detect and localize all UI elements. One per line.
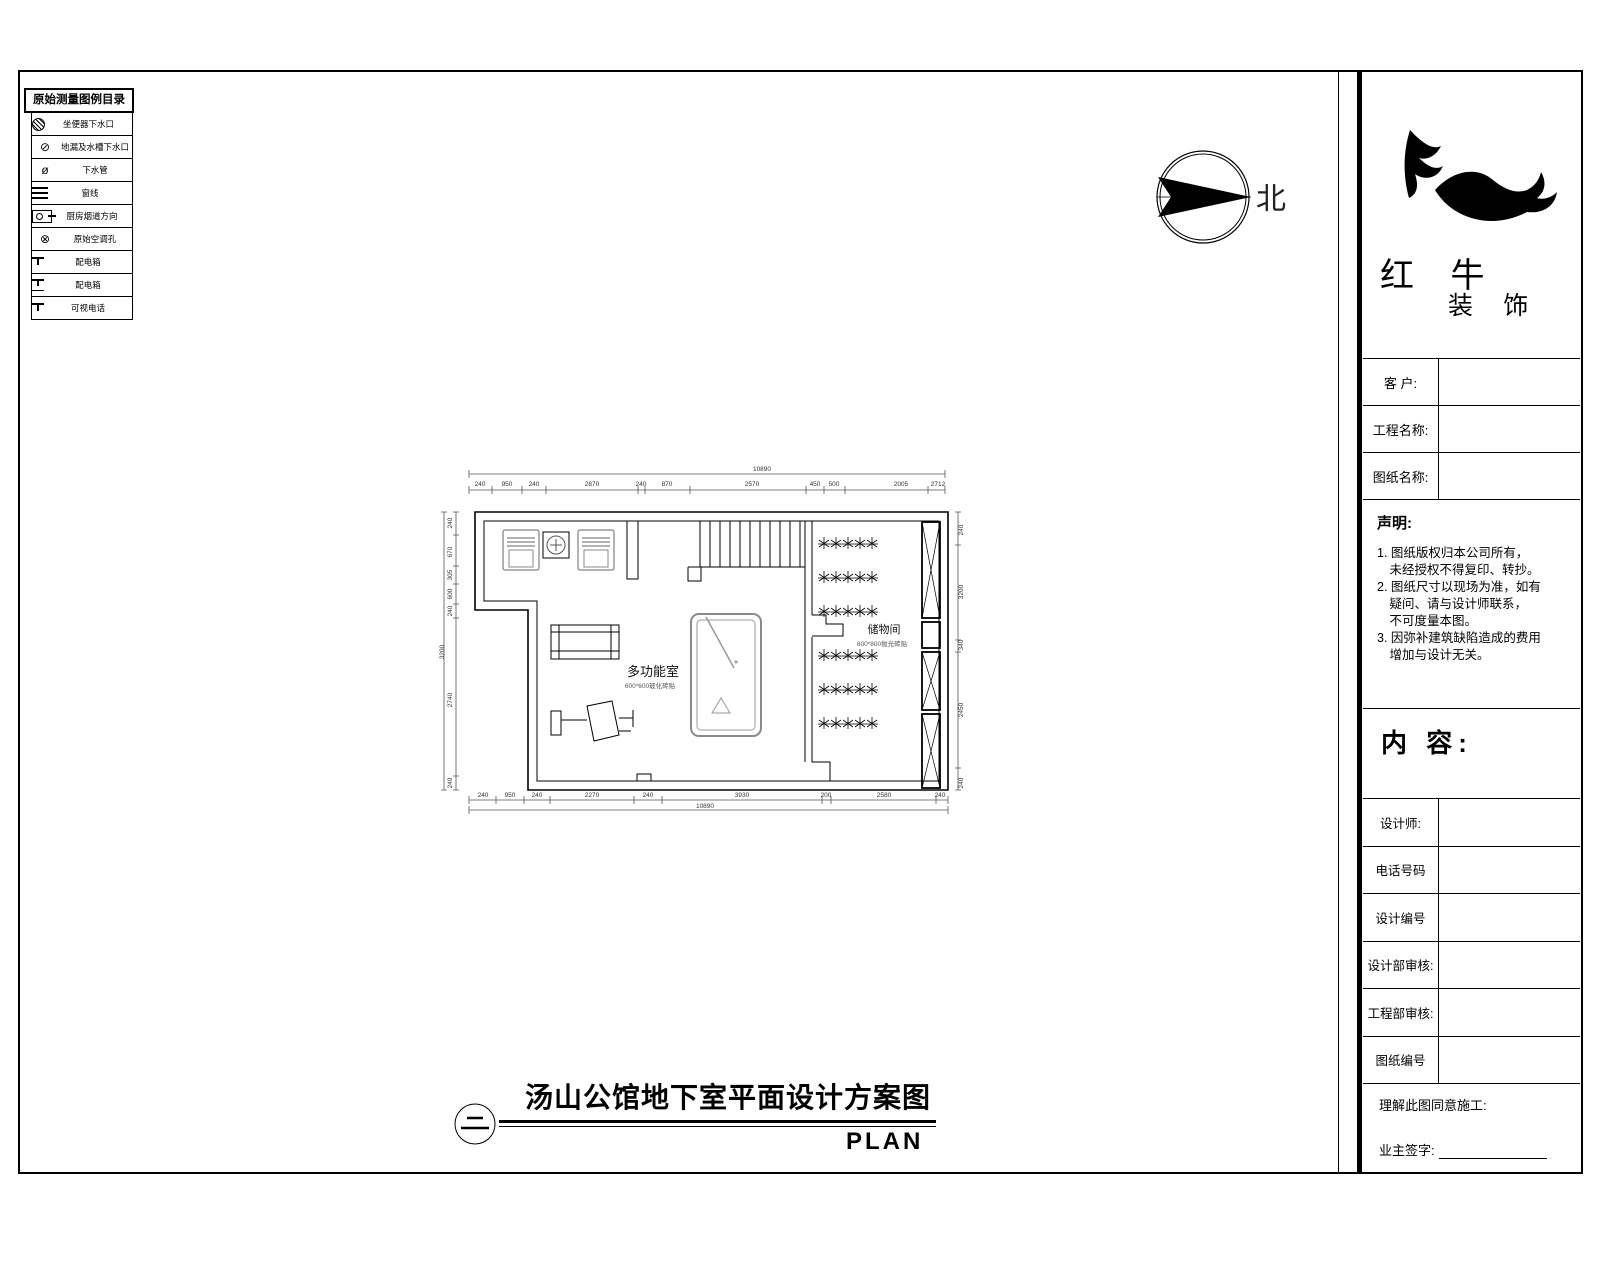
titleblock-content: 内 容: <box>1363 708 1580 798</box>
dimension-text: 240 <box>475 481 486 488</box>
room-label-multifunction: 多功能室 <box>627 664 679 679</box>
power-box2-icon <box>32 279 44 291</box>
room-label-storage: 储物间 <box>868 622 901 636</box>
field-value <box>1439 406 1580 452</box>
hanger-icon <box>818 717 830 729</box>
hanger-icon <box>854 605 866 617</box>
titleblock-row: 电话号码 <box>1363 847 1580 895</box>
dimension-text: 240 <box>958 524 965 535</box>
legend-item-label: 配电箱 <box>44 279 132 291</box>
north-label: 北 <box>1256 183 1286 216</box>
titleblock-statement: 声明: 1. 图纸版权归本公司所有， 未经授权不得复印、转抄。2. 图纸尺寸以现… <box>1363 496 1580 708</box>
field-label: 工程部审核: <box>1363 989 1439 1036</box>
dimension-text: 3200 <box>958 584 965 599</box>
dimension-text: 2740 <box>447 692 454 707</box>
field-value <box>1439 453 1580 499</box>
dimension-text: 2712 <box>931 481 946 488</box>
dimension-text: 3930 <box>735 792 750 799</box>
video-phone-icon <box>32 303 44 314</box>
hanger-icon <box>842 683 854 695</box>
legend-item: 坐便器下水口 <box>32 113 132 136</box>
hanger-icon <box>842 537 854 549</box>
hanger-icon <box>866 649 878 661</box>
titleblock-fields: 客 户:工程名称:图纸名称: <box>1363 358 1580 500</box>
hanger-icon <box>842 571 854 583</box>
dimension-text: 240 <box>636 481 647 488</box>
statement-line: 2. 图纸尺寸以现场为准，如有 <box>1377 579 1574 596</box>
field-label: 工程名称: <box>1363 406 1439 452</box>
hanger-icon <box>818 537 830 549</box>
dimension-text: 340 <box>958 639 965 650</box>
dimension-text: 2270 <box>585 792 600 799</box>
legend: 原始测量图例目录 坐便器下水口⊘地漏及水槽下水口ø下水管窗线厨房烟道方向⊗原始空… <box>24 88 134 320</box>
field-value <box>1439 894 1580 941</box>
caption-rule-thick <box>499 1120 936 1123</box>
hanger-icon <box>854 683 866 695</box>
logo-swoosh-icon <box>1435 172 1557 221</box>
signature-line <box>1439 1144 1547 1159</box>
cue-stick <box>706 617 734 668</box>
dimension-top-total: 10890 <box>753 466 771 473</box>
dimension-text: 305 <box>447 569 454 580</box>
statement-line: 未经授权不得复印、转抄。 <box>1377 562 1574 579</box>
field-value <box>1439 989 1580 1036</box>
hanger-icon <box>830 649 842 661</box>
room-note-storage: 800*800抛光砖贴 <box>857 639 908 648</box>
titleblock-row: 工程部审核: <box>1363 989 1580 1037</box>
statement-line: 3. 因弥补建筑缺陷造成的费用 <box>1377 630 1574 647</box>
hanger-icon <box>830 683 842 695</box>
hanger-icon <box>830 717 842 729</box>
pool-table <box>691 614 761 736</box>
brand-suffix: 装 饰 <box>1448 286 1540 322</box>
dimension-text: 450 <box>810 481 821 488</box>
wardrobe-cabinets <box>922 522 940 788</box>
side-table <box>543 532 569 558</box>
caption-rule-thin <box>499 1126 936 1127</box>
north-pointer-icon <box>1158 177 1251 217</box>
redbull-logo <box>1365 100 1575 250</box>
dimension-text: 200 <box>821 792 832 799</box>
gym-equipment <box>551 701 633 741</box>
hanger-icon <box>842 649 854 661</box>
legend-item: 配电箱 <box>32 274 132 297</box>
power-box-icon <box>32 257 44 268</box>
statement-line: 1. 图纸版权归本公司所有， <box>1377 545 1574 562</box>
titleblock-divider-thick <box>1357 70 1362 1172</box>
titleblock-rows: 设计师:电话号码设计编号设计部审核:工程部审核:图纸编号 <box>1363 798 1580 1084</box>
dimension-text: 870 <box>662 481 673 488</box>
legend-item: 配电箱 <box>32 251 132 274</box>
dimension-text: 240 <box>958 777 965 788</box>
field-label: 设计师: <box>1363 799 1439 846</box>
dimension-text: 240 <box>478 792 489 799</box>
dimension-text: 3200 <box>439 644 446 659</box>
dimension-text: 2580 <box>877 792 892 799</box>
field-label: 图纸名称: <box>1363 453 1439 499</box>
field-value <box>1439 942 1580 989</box>
field-value <box>1439 847 1580 894</box>
walls <box>475 512 948 790</box>
ac-hole-icon: ⊗ <box>32 232 58 246</box>
legend-items: 坐便器下水口⊘地漏及水槽下水口ø下水管窗线厨房烟道方向⊗原始空调孔配电箱配电箱可… <box>31 113 133 320</box>
dimension-text: 240 <box>643 792 654 799</box>
legend-item: ø下水管 <box>32 159 132 182</box>
daybed <box>551 625 619 659</box>
dimensions-left: 24067030560024032002740240 <box>439 517 454 788</box>
legend-item: 可视电话 <box>32 297 132 319</box>
legend-item: 厨房烟道方向 <box>32 205 132 228</box>
dimension-text: 240 <box>447 777 454 788</box>
legend-item-label: 坐便器下水口 <box>45 118 132 130</box>
north-arrow: 北 <box>1145 140 1315 255</box>
floor-drain-icon: ⊘ <box>32 140 58 154</box>
toilet-drain-icon <box>32 118 45 131</box>
dimension-text: 240 <box>447 517 454 528</box>
dimension-text: 500 <box>829 481 840 488</box>
titleblock-row: 图纸名称: <box>1363 453 1580 500</box>
hanger-icon <box>866 537 878 549</box>
hanger-icon <box>830 605 842 617</box>
statement-line: 增加与设计无关。 <box>1377 647 1574 664</box>
drawing-number-glyph <box>461 1118 489 1128</box>
legend-item: 窗线 <box>32 182 132 205</box>
dimension-text: 600 <box>447 588 454 599</box>
kitchen-flue-icon <box>32 210 52 223</box>
titleblock-row: 设计师: <box>1363 799 1580 847</box>
hanger-icon <box>854 649 866 661</box>
legend-item-label: 厨房烟道方向 <box>52 210 132 222</box>
titleblock-footer: 理解此图同意施工: 业主签字: <box>1363 1077 1580 1172</box>
hanger-icon <box>854 537 866 549</box>
legend-item-label: 可视电话 <box>44 302 132 314</box>
hanger-icon <box>854 717 866 729</box>
hanger-icon <box>866 683 878 695</box>
legend-item-label: 原始空调孔 <box>58 233 132 245</box>
field-label: 设计编号 <box>1363 894 1439 941</box>
hanger-icon <box>818 571 830 583</box>
dimension-text: 240 <box>935 792 946 799</box>
dimensions-bottom: 240950240227024039302002580240 <box>478 792 946 799</box>
armchair-right <box>578 530 614 570</box>
dimension-bottom-total: 10890 <box>696 803 714 810</box>
dimensions-right: 24032003402450240 <box>958 524 965 788</box>
dimension-text: 950 <box>502 481 513 488</box>
titleblock-row: 客 户: <box>1363 359 1580 406</box>
hanger-icon <box>830 571 842 583</box>
field-value <box>1439 359 1580 405</box>
stairs <box>688 521 805 581</box>
content-label: 内 容: <box>1381 728 1473 758</box>
dimension-text: 2005 <box>894 481 909 488</box>
ball-rack <box>712 698 730 713</box>
owner-signature-label: 业主签字: <box>1379 1140 1435 1159</box>
room-note-multifunction: 600*600玻化砖贴 <box>625 681 676 690</box>
footer-agreement: 理解此图同意施工: <box>1379 1095 1580 1114</box>
dimension-text: 240 <box>447 605 454 616</box>
field-label: 设计部审核: <box>1363 942 1439 989</box>
hanger-icon <box>866 717 878 729</box>
hanger-icon <box>818 649 830 661</box>
hanger-icon <box>842 605 854 617</box>
dimension-text: 2450 <box>958 702 965 717</box>
plan-subtitle: PLAN <box>846 1128 923 1156</box>
titleblock-row: 工程名称: <box>1363 406 1580 453</box>
storage-door-jamb <box>812 762 830 781</box>
field-label: 电话号码 <box>1363 847 1439 894</box>
legend-item-label: 下水管 <box>58 164 132 176</box>
dimension-text: 240 <box>529 481 540 488</box>
statement-line: 疑问、请与设计师联系， <box>1377 596 1574 613</box>
drain-pipe-icon: ø <box>32 163 58 177</box>
hanger-icon <box>818 683 830 695</box>
dimension-text: 670 <box>447 546 454 557</box>
field-label: 客 户: <box>1363 359 1439 405</box>
legend-item: ⊗原始空调孔 <box>32 228 132 251</box>
statement-title: 声明: <box>1377 512 1574 533</box>
field-value <box>1439 799 1580 846</box>
window-line-icon <box>32 187 48 199</box>
hanger-icon <box>830 537 842 549</box>
dimension-text: 950 <box>505 792 516 799</box>
legend-item: ⊘地漏及水槽下水口 <box>32 136 132 159</box>
floor-plan: 2409502402870240870257045050020052712 24… <box>420 455 980 820</box>
titleblock-divider-thin <box>1338 70 1339 1172</box>
legend-title: 原始测量图例目录 <box>24 88 134 113</box>
hanger-icon <box>842 717 854 729</box>
dimension-text: 2870 <box>585 481 600 488</box>
dimension-text: 2570 <box>745 481 760 488</box>
titleblock-row: 设计编号 <box>1363 894 1580 942</box>
drawing-title: 汤山公馆地下室平面设计方案图 <box>525 1076 931 1116</box>
statement-lines: 1. 图纸版权归本公司所有， 未经授权不得复印、转抄。2. 图纸尺寸以现场为准，… <box>1377 545 1574 664</box>
legend-item-label: 窗线 <box>48 187 132 199</box>
hanger-icon <box>866 605 878 617</box>
dimension-text: 240 <box>532 792 543 799</box>
armchair-left <box>503 530 539 570</box>
dimensions-top: 2409502402870240870257045050020052712 <box>475 481 946 488</box>
statement-line: 不可度量本图。 <box>1377 613 1574 630</box>
titleblock-row: 设计部审核: <box>1363 942 1580 990</box>
legend-item-label: 地漏及水槽下水口 <box>58 141 132 153</box>
hanger-icon <box>866 571 878 583</box>
hanger-icon <box>854 571 866 583</box>
legend-item-label: 配电箱 <box>44 256 132 268</box>
drawing-number-bubble <box>447 1096 503 1152</box>
